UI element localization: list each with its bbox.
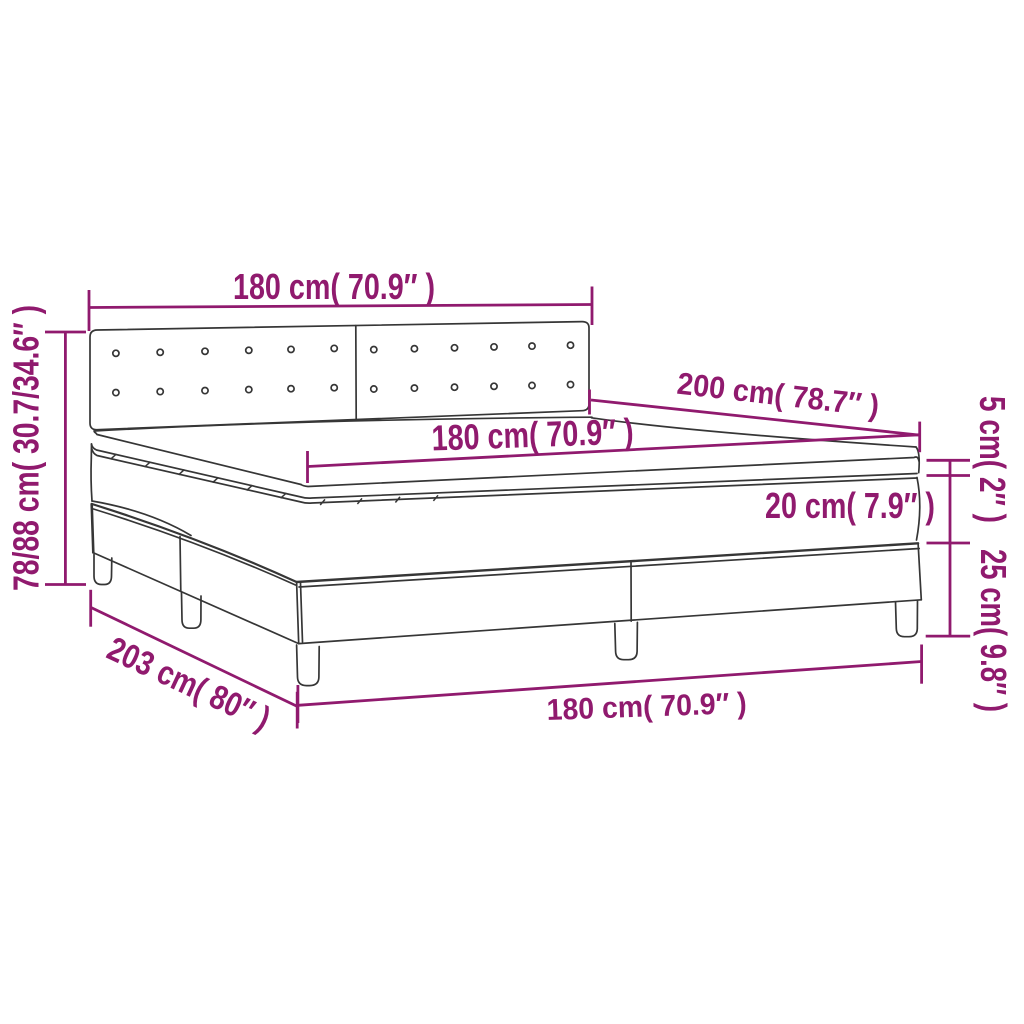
svg-text:180 cm( 70.9″ ): 180 cm( 70.9″ ) [546, 687, 747, 727]
svg-text:25 cm( 9.8″ ): 25 cm( 9.8″ ) [973, 549, 1014, 712]
svg-text:20 cm( 7.9″ ): 20 cm( 7.9″ ) [765, 485, 935, 526]
svg-text:5 cm( 2″ ): 5 cm( 2″ ) [972, 396, 1013, 523]
svg-text:180 cm( 70.9″ ): 180 cm( 70.9″ ) [431, 410, 634, 458]
svg-text:78/88 cm( 30.7/34.6″ ): 78/88 cm( 30.7/34.6″ ) [6, 305, 47, 591]
svg-text:180 cm( 70.9″ ): 180 cm( 70.9″ ) [233, 266, 435, 307]
